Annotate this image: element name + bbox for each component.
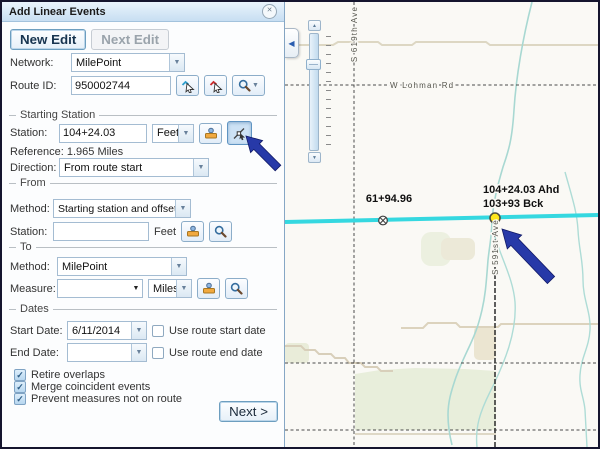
next-button[interactable]: Next >: [219, 401, 278, 422]
direction-row: Direction: From route start ▼: [10, 157, 278, 178]
to-method-row: Method: MilePoint ▼: [10, 256, 278, 277]
use-route-start-date-checkbox[interactable]: [152, 325, 164, 337]
use-route-end-date-label: Use route end date: [169, 347, 263, 359]
pick-station-icon: [232, 126, 247, 141]
zoom-slider-ticks: [326, 36, 331, 150]
collapse-left-icon: ◀: [288, 39, 294, 48]
new-edit-button[interactable]: New Edit: [10, 29, 86, 50]
close-icon[interactable]: ✕: [262, 4, 277, 19]
zoom-slider-thumb[interactable]: [306, 59, 321, 70]
station-units-value: Feet: [153, 127, 178, 139]
end-date-label: End Date:: [10, 347, 62, 359]
select-route-on-map-button[interactable]: [176, 75, 199, 96]
map-minor-road: [401, 323, 598, 328]
measure-row: Measure: ▼ Miles ▼: [10, 278, 278, 299]
measure-units-value: Miles: [149, 283, 176, 295]
clear-route-selection-button[interactable]: [204, 75, 227, 96]
chevron-down-icon[interactable]: ▼: [169, 54, 184, 71]
route-id-row: Route ID: ▼: [10, 75, 278, 96]
from-method-row: Method: Starting station and offset ▼: [10, 198, 278, 219]
from-station-label: Station:: [10, 226, 48, 238]
start-date-row: Start Date: 6/11/2014 ▼ Use route start …: [10, 320, 278, 341]
start-date-label: Start Date:: [10, 325, 62, 337]
start-date-value: 6/11/2014: [68, 325, 131, 337]
station-units-combobox[interactable]: Feet ▼: [152, 124, 194, 143]
use-route-start-date-label: Use route start date: [169, 325, 266, 337]
station-reference-marker[interactable]: [379, 216, 388, 225]
collapse-panel-tab[interactable]: ◀: [285, 28, 299, 58]
route-id-label: Route ID:: [10, 80, 66, 92]
chevron-down-icon[interactable]: ▼: [176, 280, 191, 297]
direction-value: From route start: [60, 162, 193, 174]
panel-titlebar: Add Linear Events ✕: [2, 2, 284, 22]
zoom-slider: ▲ ▼: [305, 20, 335, 166]
network-value: MilePoint: [72, 57, 169, 69]
clear-selection-icon: [209, 79, 223, 93]
to-method-label: Method:: [10, 261, 52, 273]
station-marker-icon: [202, 282, 216, 295]
zoom-slider-track[interactable]: [309, 33, 319, 151]
station-marker-icon: [186, 225, 200, 238]
map-stream: [565, 172, 590, 447]
from-method-value: Starting station and offset: [54, 203, 175, 215]
map-beige-blob: [474, 326, 496, 360]
station-marker-icon: [204, 127, 218, 140]
from-section-label: From: [20, 177, 46, 189]
to-method-value: MilePoint: [58, 261, 171, 273]
map-beige-blob: [441, 238, 475, 260]
end-date-combobox[interactable]: ▼: [67, 343, 147, 362]
end-date-row: End Date: ▼ Use route end date: [10, 342, 278, 363]
chevron-down-icon[interactable]: ▼: [178, 125, 193, 142]
from-method-label: Method:: [10, 203, 48, 215]
start-date-combobox[interactable]: 6/11/2014 ▼: [67, 321, 147, 340]
app-window: Add Linear Events ✕ New Edit Next Edit N…: [0, 0, 600, 449]
panel-title: Add Linear Events: [9, 6, 262, 18]
chevron-down-icon: ▼: [252, 82, 259, 89]
route-id-input[interactable]: [71, 76, 171, 95]
network-combobox[interactable]: MilePoint ▼: [71, 53, 185, 72]
from-station-row: Station: Feet: [10, 221, 278, 242]
road-label-vertical-left: S 619th Ave: [350, 6, 359, 62]
use-route-end-date-checkbox[interactable]: [152, 347, 164, 359]
station-label: Station:: [10, 127, 54, 139]
search-icon: [214, 225, 227, 238]
chevron-down-icon[interactable]: ▼: [171, 258, 186, 275]
map-greenfield-polygon: [355, 368, 496, 430]
starting-station-input[interactable]: [59, 124, 147, 143]
zoom-out-button[interactable]: ▼: [308, 152, 321, 163]
from-station-from-measure-button[interactable]: [181, 221, 204, 242]
wizard-footer: Next >: [10, 401, 278, 422]
chevron-down-icon[interactable]: ▼: [175, 200, 190, 217]
from-method-combobox[interactable]: Starting station and offset ▼: [53, 199, 191, 218]
search-icon: [238, 79, 251, 92]
to-section: To: [9, 241, 277, 253]
chevron-down-icon[interactable]: ▼: [193, 159, 208, 176]
measure-from-map-button[interactable]: [197, 278, 220, 299]
direction-label: Direction:: [10, 162, 54, 174]
selected-route-line[interactable]: [285, 215, 598, 222]
station-from-measure-button[interactable]: [199, 123, 222, 144]
next-edit-button[interactable]: Next Edit: [91, 29, 169, 50]
pick-station-on-map-button[interactable]: [227, 121, 252, 145]
starting-station-row: Station: Feet ▼: [10, 120, 278, 146]
station-label-ahead: 104+24.03 Ahd: [483, 184, 559, 196]
measure-units-combobox[interactable]: Miles ▼: [148, 279, 192, 298]
dates-section: Dates: [9, 303, 277, 315]
edit-toolbar: New Edit Next Edit: [10, 29, 278, 50]
road-label-vertical-right: S 591st Ave: [491, 219, 500, 275]
from-station-search-button[interactable]: [209, 221, 232, 242]
station-label-back: 103+93 Bck: [483, 198, 544, 210]
direction-combobox[interactable]: From route start ▼: [59, 158, 209, 177]
map-container: W Lohman Rd S 619th Ave S 591st Ave 61+9…: [285, 2, 598, 447]
from-station-input[interactable]: [53, 222, 149, 241]
select-route-icon: [181, 79, 195, 93]
station-label-left: 61+94.96: [366, 193, 412, 205]
network-row: Network: MilePoint ▼: [10, 52, 278, 73]
chevron-down-icon[interactable]: ▼: [131, 322, 146, 339]
measure-combobox[interactable]: ▼: [57, 279, 143, 298]
zoom-in-button[interactable]: ▲: [308, 20, 321, 31]
from-station-units: Feet: [154, 226, 176, 238]
measure-search-button[interactable]: [225, 278, 248, 299]
road-label-horizontal: W Lohman Rd: [390, 81, 454, 90]
slider-up-icon: ▲: [312, 23, 317, 29]
to-method-combobox[interactable]: MilePoint ▼: [57, 257, 187, 276]
slider-down-icon: ▼: [312, 155, 317, 161]
network-label: Network:: [10, 57, 66, 69]
dates-section-label: Dates: [20, 303, 49, 315]
from-section: From: [9, 177, 277, 189]
chevron-down-icon[interactable]: ▼: [130, 280, 142, 297]
route-search-dropdown-button[interactable]: ▼: [232, 75, 265, 96]
search-icon: [230, 282, 243, 295]
add-linear-events-panel: Add Linear Events ✕ New Edit Next Edit N…: [2, 2, 285, 447]
chevron-down-icon[interactable]: ▼: [131, 344, 146, 361]
measure-label: Measure:: [10, 283, 52, 295]
to-section-label: To: [20, 241, 32, 253]
